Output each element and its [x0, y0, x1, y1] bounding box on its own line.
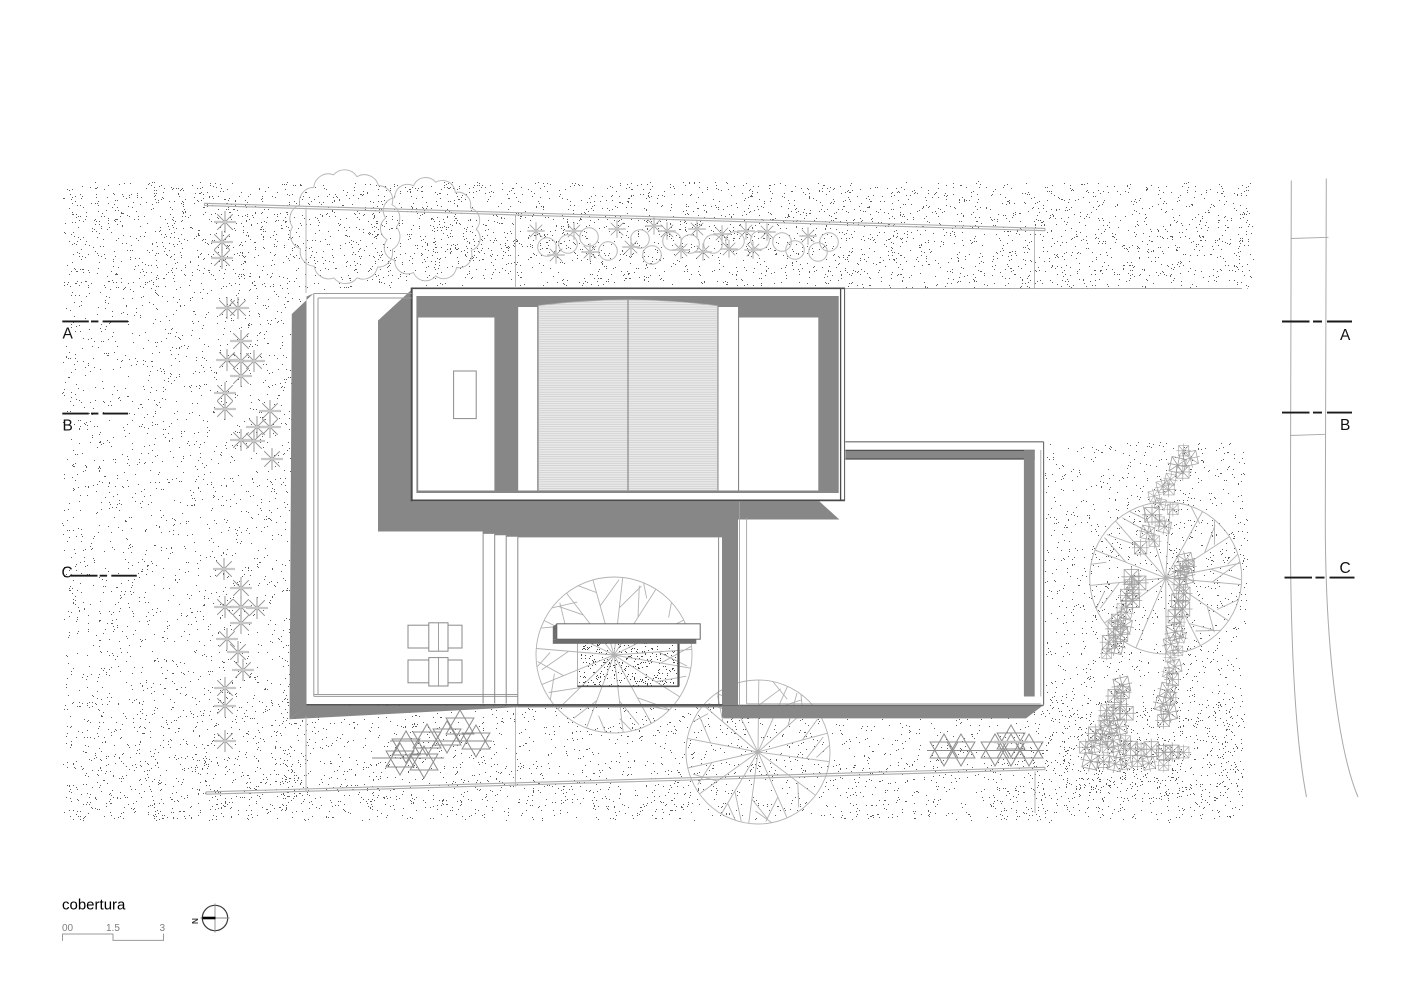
svg-text:B: B: [1340, 417, 1350, 434]
svg-text:A: A: [63, 326, 74, 343]
svg-text:C: C: [62, 565, 73, 582]
svg-text:1.5: 1.5: [106, 923, 120, 934]
svg-text:00: 00: [62, 923, 74, 934]
svg-text:N: N: [190, 918, 200, 924]
svg-text:3: 3: [160, 923, 166, 934]
svg-text:B: B: [63, 418, 73, 435]
svg-text:cobertura: cobertura: [62, 897, 126, 914]
svg-text:C: C: [1340, 560, 1351, 577]
svg-text:A: A: [1340, 327, 1351, 344]
